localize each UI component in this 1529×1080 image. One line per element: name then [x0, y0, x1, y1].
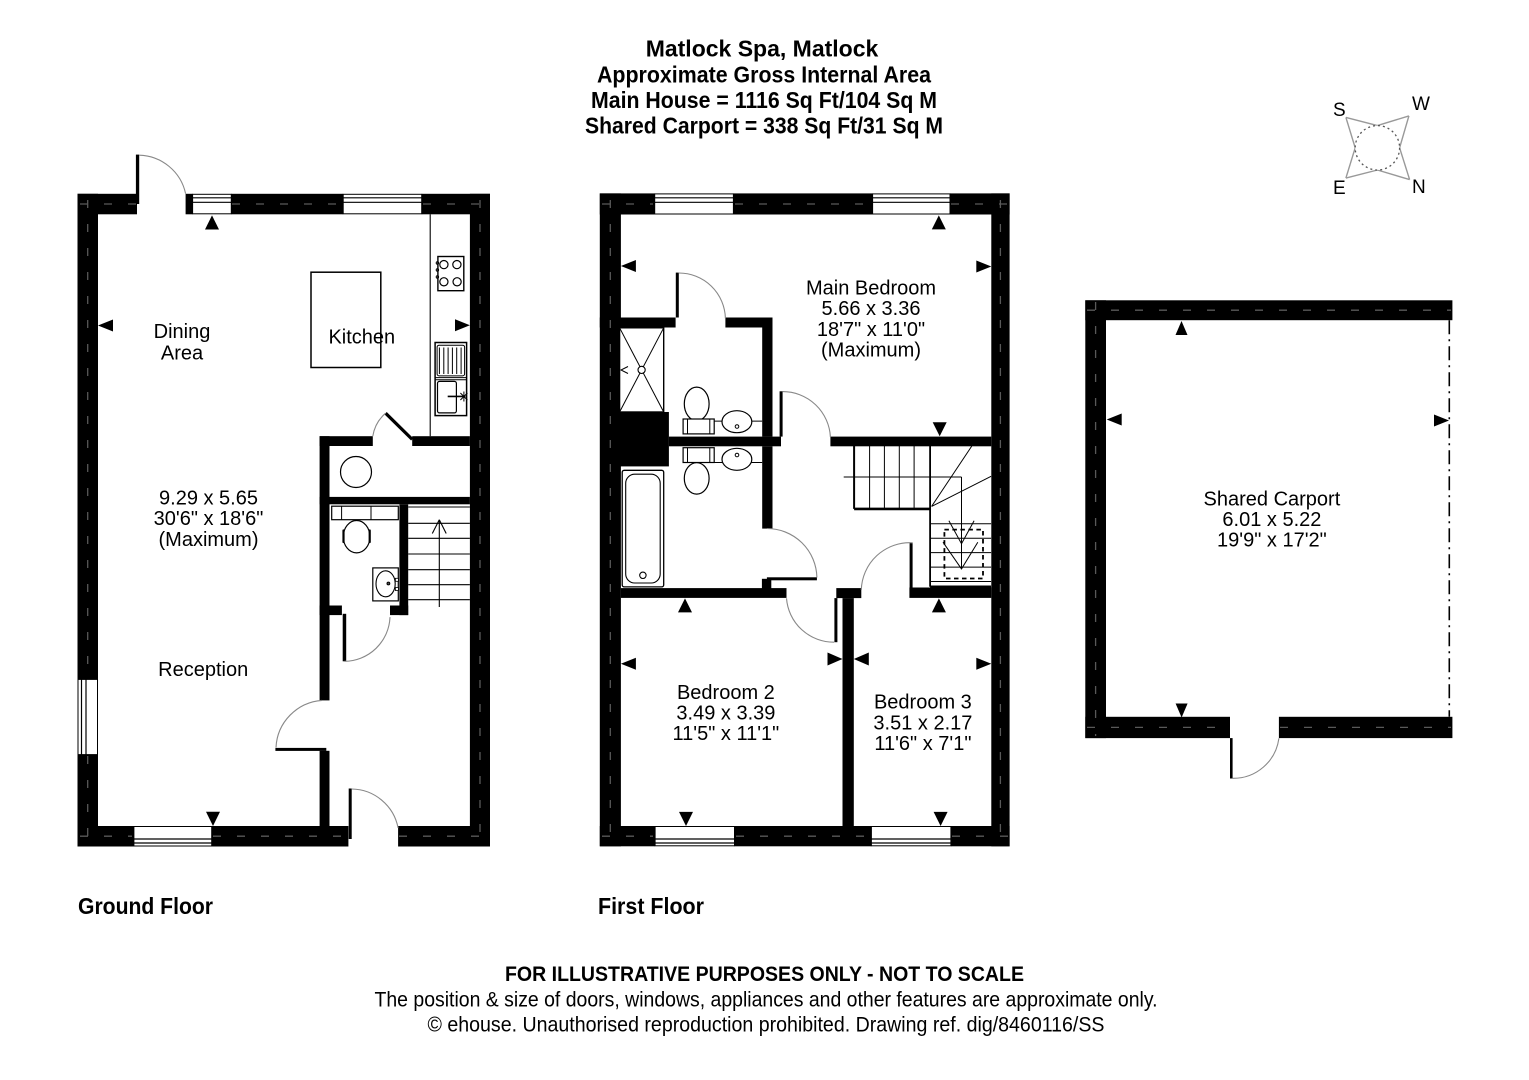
- svg-text:Reception: Reception: [158, 659, 248, 681]
- svg-text:11'5" x 11'1": 11'5" x 11'1": [673, 723, 780, 745]
- svg-text:Dining: Dining: [154, 321, 211, 343]
- svg-text:Main Bedroom: Main Bedroom: [806, 277, 936, 299]
- svg-text:(Maximum): (Maximum): [821, 340, 921, 362]
- svg-text:5.66 x 3.36: 5.66 x 3.36: [822, 298, 921, 320]
- svg-text:FOR ILLUSTRATIVE PURPOSES ONLY: FOR ILLUSTRATIVE PURPOSES ONLY - NOT TO …: [505, 962, 1024, 986]
- svg-text:Area: Area: [161, 343, 204, 365]
- svg-text:18'7" x 11'0": 18'7" x 11'0": [817, 319, 925, 341]
- svg-text:The position & size of doors,: The position & size of doors, windows, a…: [375, 988, 1158, 1012]
- svg-text:9.29 x 5.65: 9.29 x 5.65: [159, 488, 258, 510]
- svg-text:Kitchen: Kitchen: [328, 326, 395, 348]
- svg-text:Approximate Gross Internal Are: Approximate Gross Internal Area: [597, 61, 931, 87]
- svg-text:30'6" x 18'6": 30'6" x 18'6": [154, 508, 264, 530]
- svg-text:Bedroom 2: Bedroom 2: [677, 682, 775, 704]
- svg-text:11'6" x 7'1": 11'6" x 7'1": [874, 733, 971, 755]
- svg-text:3.51 x 2.17: 3.51 x 2.17: [873, 712, 972, 734]
- svg-text:19'9" x 17'2": 19'9" x 17'2": [1217, 529, 1327, 551]
- svg-text:Bedroom 3: Bedroom 3: [874, 692, 972, 714]
- svg-text:W: W: [1412, 94, 1430, 115]
- svg-text:E: E: [1333, 178, 1346, 199]
- svg-text:Shared Carport: Shared Carport: [1204, 489, 1341, 511]
- svg-text:6.01 x 5.22: 6.01 x 5.22: [1222, 509, 1321, 531]
- svg-text:First Floor: First Floor: [598, 893, 704, 919]
- svg-text:Ground Floor: Ground Floor: [78, 893, 213, 919]
- svg-text:Shared Carport = 338 Sq Ft/31: Shared Carport = 338 Sq Ft/31 Sq M: [585, 113, 943, 139]
- svg-text:(Maximum): (Maximum): [159, 529, 259, 551]
- svg-text:3.49 x 3.39: 3.49 x 3.39: [676, 703, 775, 725]
- svg-text:S: S: [1333, 100, 1346, 121]
- svg-text:© ehouse. Unauthorised reprodu: © ehouse. Unauthorised reproduction proh…: [428, 1013, 1105, 1037]
- svg-text:Matlock Spa, Matlock: Matlock Spa, Matlock: [646, 36, 879, 62]
- svg-text:N: N: [1412, 177, 1426, 198]
- svg-text:Main House = 1116 Sq Ft/104 Sq: Main House = 1116 Sq Ft/104 Sq M: [591, 87, 937, 113]
